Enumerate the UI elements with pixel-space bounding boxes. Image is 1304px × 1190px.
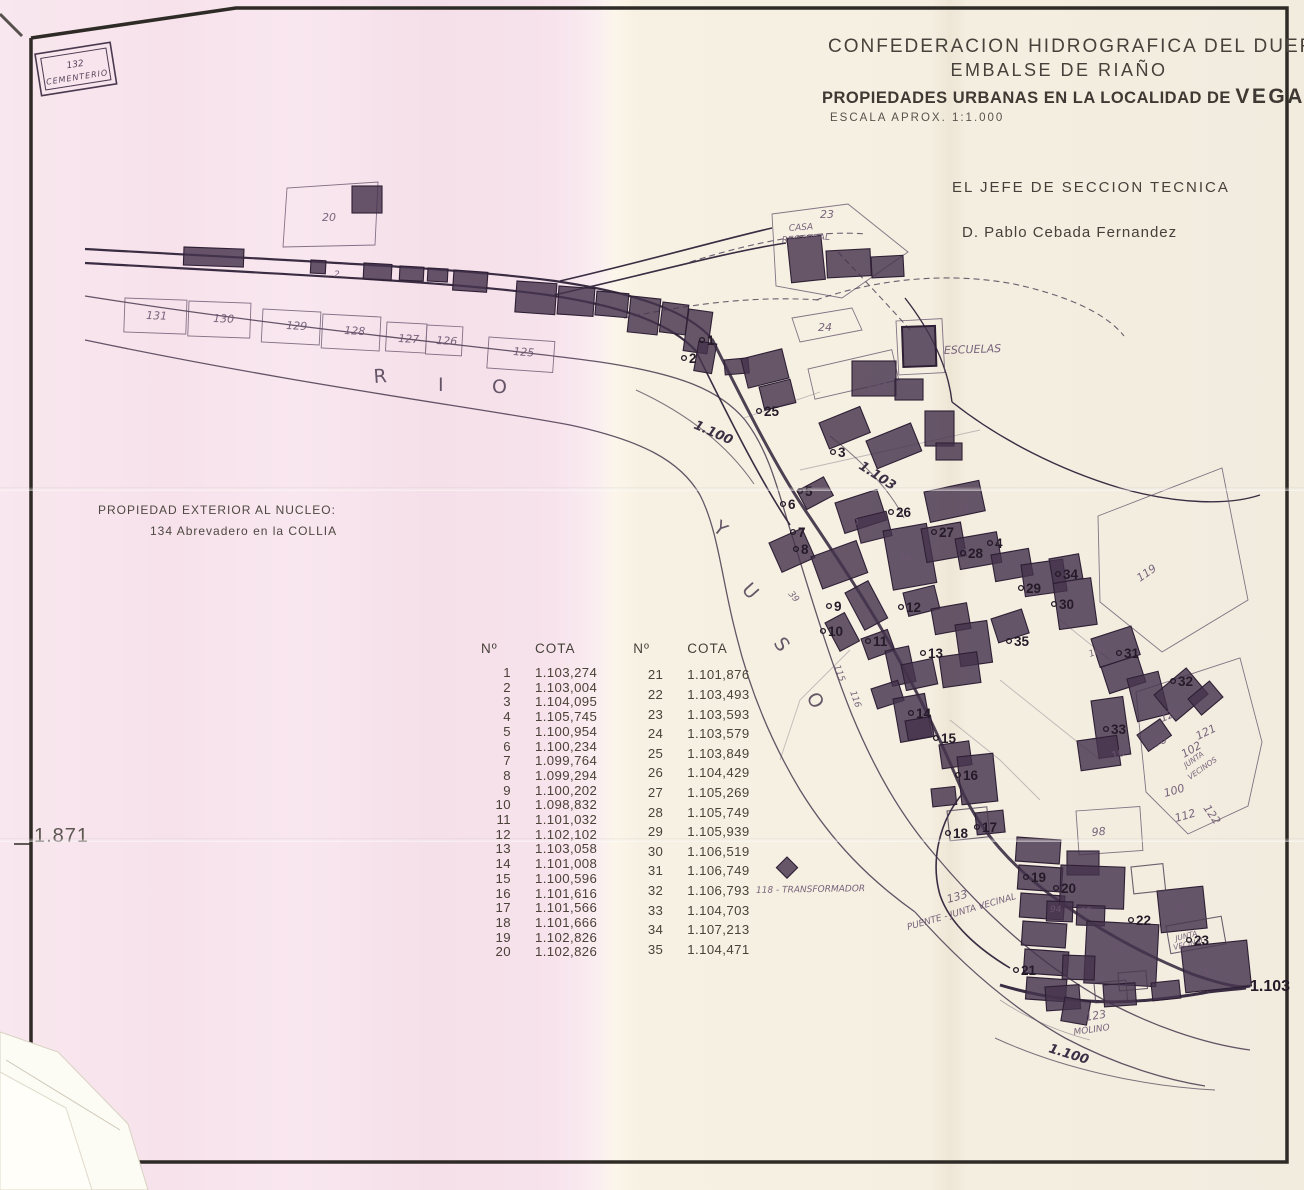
cota-row-value: 1.104,429 xyxy=(687,764,749,784)
survey-point-number: 26 xyxy=(896,505,912,520)
cota-row: 61.100,234 xyxy=(481,740,597,755)
map-label: 95 xyxy=(1080,907,1092,917)
map-label: 1.100 xyxy=(691,418,735,448)
map-label: 115 xyxy=(831,664,846,684)
map-label: 133 xyxy=(945,888,969,906)
org-title: CONFEDERACION HIDROGRAFICA DEL DUERO xyxy=(828,36,1290,58)
survey-point-number: 33 xyxy=(1111,722,1127,737)
map-label: S xyxy=(769,633,794,655)
cota-row-number: 22 xyxy=(633,686,687,706)
map-label: R xyxy=(373,365,388,388)
cota-row-value: 1.101,616 xyxy=(535,887,597,902)
cota-row-value: 1.102,826 xyxy=(535,945,597,960)
cota-row-value: 1.099,294 xyxy=(535,769,597,784)
survey-point-number: 6 xyxy=(788,497,796,512)
cota-row: 51.100,954 xyxy=(481,725,597,740)
cota-row-value: 1.100,954 xyxy=(535,725,597,740)
map-label: 118 - TRANSFORMADOR xyxy=(756,884,865,896)
cota-row: 81.099,294 xyxy=(481,769,597,784)
cota-row-value: 1.101,566 xyxy=(535,901,597,916)
cota-row-value: 1.101,876 xyxy=(687,666,749,686)
cota-row: 151.100,596 xyxy=(481,872,597,887)
survey-point-number: 5 xyxy=(805,484,813,499)
cota-row: 161.101,616 xyxy=(481,887,597,902)
map-label: 125 xyxy=(513,345,535,359)
cota-row-number: 31 xyxy=(633,862,687,882)
cota-row-value: 1.103,579 xyxy=(687,725,749,745)
col-header-num: Nº xyxy=(633,641,687,666)
cota-row-value: 1.105,745 xyxy=(535,710,597,725)
map-label: MOLINO xyxy=(1073,1023,1110,1038)
survey-point-number: 28 xyxy=(968,546,984,561)
survey-point-number: 32 xyxy=(1178,674,1193,689)
map-label: 119 xyxy=(1134,562,1159,585)
cota-row-value: 1.101,666 xyxy=(535,916,597,931)
note-line2: 134 Abrevadero en la COLLIA xyxy=(150,524,337,538)
survey-point-dot xyxy=(1019,586,1024,591)
map-label: 44 xyxy=(899,553,912,565)
cota-row-number: 13 xyxy=(481,842,535,857)
map-label: Y xyxy=(708,516,732,541)
cota-row-number: 21 xyxy=(633,666,687,686)
survey-point-number: 1 xyxy=(707,333,715,348)
cota-row-number: 34 xyxy=(633,921,687,941)
cota-row: 191.102,826 xyxy=(481,931,597,946)
survey-point-dot xyxy=(899,605,904,610)
survey-point-dot xyxy=(1129,918,1134,923)
survey-point-number: 7 xyxy=(798,525,806,540)
signature-role: EL JEFE DE SECCION TECNICA xyxy=(952,179,1230,196)
exterior-property-note: PROPIEDAD EXTERIOR AL NUCLEO: 134 Abreva… xyxy=(98,503,337,538)
col-header-num: Nº xyxy=(481,641,535,666)
cota-row: 261.104,429 xyxy=(633,764,749,784)
map-label: 76 xyxy=(1173,906,1186,917)
project-title: EMBALSE DE RIAÑO xyxy=(828,60,1290,81)
cota-row: 131.103,058 xyxy=(481,842,597,857)
scanned-map-sheet: 132 CEMENTERIO RIOYUSO1.1001.1031.1001.1… xyxy=(0,0,1304,1190)
cota-row-value: 1.099,764 xyxy=(535,754,597,769)
survey-point-dot xyxy=(827,604,832,609)
cota-row-number: 5 xyxy=(481,725,535,740)
map-label: 128 xyxy=(344,324,366,338)
cota-row-number: 27 xyxy=(633,784,687,804)
survey-point-dot xyxy=(921,651,926,656)
map-label: 16 xyxy=(957,504,970,516)
cota-row-value: 1.103,849 xyxy=(687,744,749,764)
survey-point-dot xyxy=(831,450,836,455)
survey-point-number: 10 xyxy=(828,624,843,639)
survey-point-number: 15 xyxy=(941,731,957,746)
cemetery-stamp: 132 CEMENTERIO xyxy=(35,42,117,95)
survey-point-number: 20 xyxy=(1061,881,1076,896)
cota-row-number: 20 xyxy=(481,945,535,960)
cota-row: 171.101,566 xyxy=(481,901,597,916)
map-label: 1.100 xyxy=(1047,1041,1091,1067)
cota-row-number: 4 xyxy=(481,710,535,725)
map-label: 77 xyxy=(1112,945,1124,955)
cota-row-value: 1.105,749 xyxy=(687,803,749,823)
map-label: ESCUELAS xyxy=(944,342,1002,357)
cota-row-value: 1.105,939 xyxy=(687,823,749,843)
cota-row-number: 19 xyxy=(481,931,535,946)
cota-row-value: 1.104,703 xyxy=(687,901,749,921)
cota-row-value: 1.104,095 xyxy=(535,695,597,710)
cota-row: 71.099,764 xyxy=(481,754,597,769)
cota-table: Nº COTA 11.103,27421.103,00431.104,09541… xyxy=(481,641,750,960)
cota-row-number: 3 xyxy=(481,695,535,710)
cota-row-number: 11 xyxy=(481,813,535,828)
map-label: 112 xyxy=(1173,807,1197,825)
survey-point-number: 13 xyxy=(928,646,944,661)
cota-row: 311.106,749 xyxy=(633,862,749,882)
cota-row-number: 24 xyxy=(633,725,687,745)
cota-row-number: 26 xyxy=(633,764,687,784)
cota-row-number: 2 xyxy=(481,681,535,696)
cota-row: 211.101,876 xyxy=(633,666,749,686)
cota-row-number: 16 xyxy=(481,887,535,902)
survey-point-number: 27 xyxy=(939,525,954,540)
cota-row-value: 1.105,269 xyxy=(687,784,749,804)
cota-row-value: 1.106,519 xyxy=(687,842,749,862)
cota-row: 221.103,493 xyxy=(633,686,749,706)
survey-point-number: 18 xyxy=(953,826,969,841)
survey-point-number: 9 xyxy=(834,599,842,614)
map-label: 97 xyxy=(1158,988,1168,998)
survey-point-number: 25 xyxy=(764,404,780,419)
cota-row-number: 23 xyxy=(633,705,687,725)
survey-point-number: 12 xyxy=(906,600,921,615)
survey-point-dot xyxy=(889,510,894,515)
cota-row-value: 1.098,832 xyxy=(535,798,597,813)
cota-row-number: 35 xyxy=(633,940,687,960)
cota-row: 331.104,703 xyxy=(633,901,749,921)
cota-row: 31.104,095 xyxy=(481,695,597,710)
cota-row-number: 6 xyxy=(481,740,535,755)
cota-row: 231.103,593 xyxy=(633,705,749,725)
map-label: 131 xyxy=(146,309,167,323)
cota-row-number: 9 xyxy=(481,784,535,799)
cota-row: 301.106,519 xyxy=(633,842,749,862)
survey-point-dot xyxy=(1014,968,1019,973)
survey-point-number: 14 xyxy=(916,706,932,721)
cota-row-number: 18 xyxy=(481,916,535,931)
survey-point-number: 4 xyxy=(995,536,1003,551)
cota-row-number: 7 xyxy=(481,754,535,769)
cota-row: 291.105,939 xyxy=(633,823,749,843)
cota-row-value: 1.103,274 xyxy=(535,666,597,681)
survey-point-number: 31 xyxy=(1124,646,1140,661)
cota-row: 271.105,269 xyxy=(633,784,749,804)
map-label: 24 xyxy=(818,321,832,334)
cota-row: 241.103,579 xyxy=(633,725,749,745)
cota-row-number: 17 xyxy=(481,901,535,916)
cota-row-number: 15 xyxy=(481,872,535,887)
survey-point-number: 34 xyxy=(1063,567,1079,582)
cota-row-number: 10 xyxy=(481,798,535,813)
svg-text:132: 132 xyxy=(66,59,85,72)
cota-table-right: Nº COTA 211.101,876221.103,493231.103,59… xyxy=(633,641,749,960)
map-label: 116 xyxy=(847,690,862,710)
map-label: 94 xyxy=(1050,905,1062,915)
map-label: RECTORAL xyxy=(782,233,831,246)
folded-corner xyxy=(0,1032,148,1190)
cota-row-number: 33 xyxy=(633,901,687,921)
cota-row: 11.103,274 xyxy=(481,666,597,681)
cota-row-value: 1.106,749 xyxy=(687,862,749,882)
cota-row: 101.098,832 xyxy=(481,798,597,813)
map-label: O xyxy=(492,376,507,398)
cota-row-value: 1.106,793 xyxy=(687,882,749,902)
cota-row-value: 1.107,213 xyxy=(687,921,749,941)
cota-row: 181.101,666 xyxy=(481,916,597,931)
cota-row-number: 29 xyxy=(633,823,687,843)
cota-row: 41.105,745 xyxy=(481,710,597,725)
cota-row: 281.105,749 xyxy=(633,803,749,823)
survey-point-number: 2 xyxy=(689,351,697,366)
map-label: CASA xyxy=(789,222,814,234)
cota-row-value: 1.102,826 xyxy=(535,931,597,946)
cota-row-number: 12 xyxy=(481,828,535,843)
cota-row: 251.103,849 xyxy=(633,744,749,764)
survey-point-dot xyxy=(682,356,687,361)
cota-row-value: 1.100,202 xyxy=(535,784,597,799)
map-label: 126 xyxy=(436,334,458,348)
map-label: 92 xyxy=(1203,966,1216,977)
col-header-cota: COTA xyxy=(687,641,749,666)
cota-row-number: 30 xyxy=(633,842,687,862)
cota-row: 91.100,202 xyxy=(481,784,597,799)
survey-point-number: 22 xyxy=(1136,913,1151,928)
survey-point-number: 35 xyxy=(1014,634,1030,649)
survey-point-number: 23 xyxy=(1194,933,1210,948)
map-title-place: VEGACERNEJA xyxy=(1235,85,1304,108)
cota-row-value: 1.103,004 xyxy=(535,681,597,696)
cota-row-value: 1.101,008 xyxy=(535,857,597,872)
svg-text:CEMENTERIO: CEMENTERIO xyxy=(45,68,108,87)
survey-point-number: 17 xyxy=(982,820,997,835)
cota-row-value: 1.104,471 xyxy=(687,940,749,960)
cota-row-number: 32 xyxy=(633,882,687,902)
map-label: 129 xyxy=(286,319,308,333)
map-label: 98 xyxy=(1091,825,1106,839)
cota-row-value: 1.101,032 xyxy=(535,813,597,828)
survey-point-number: 3 xyxy=(838,445,846,460)
cota-row-number: 1 xyxy=(481,666,535,681)
cota-row: 121.102,102 xyxy=(481,828,597,843)
cota-row-value: 1.103,593 xyxy=(687,705,749,725)
map-label: 23 xyxy=(820,208,834,221)
cota-row: 321.106,793 xyxy=(633,882,749,902)
map-title-prefix: PROPIEDADES URBANAS EN LA LOCALIDAD DE xyxy=(822,89,1231,107)
cota-row: 351.104,471 xyxy=(633,940,749,960)
cota-row: 201.102,826 xyxy=(481,945,597,960)
survey-point-number: 30 xyxy=(1059,597,1074,612)
cota-row-value: 1.103,493 xyxy=(687,686,749,706)
map-label: 39 xyxy=(786,590,801,605)
map-label: 127 xyxy=(398,332,420,346)
cota-row-number: 28 xyxy=(633,803,687,823)
survey-point-number: 8 xyxy=(801,542,809,557)
signature-name: D. Pablo Cebada Fernandez xyxy=(962,224,1177,241)
cota-row-value: 1.103,058 xyxy=(535,842,597,857)
cota-row: 341.107,213 xyxy=(633,921,749,941)
cota-row: 141.101,008 xyxy=(481,857,597,872)
cota-row-value: 1.100,596 xyxy=(535,872,597,887)
map-label: 130 xyxy=(213,312,234,326)
map-label: U xyxy=(737,579,763,604)
cota-table-left: Nº COTA 11.103,27421.103,00431.104,09541… xyxy=(481,641,597,960)
survey-point-number: 11 xyxy=(873,634,888,649)
map-label: 1.103 xyxy=(1250,978,1290,995)
survey-point-number: 21 xyxy=(1021,963,1037,978)
cota-row-number: 25 xyxy=(633,744,687,764)
survey-point-number: 29 xyxy=(1026,581,1041,596)
map-title: PROPIEDADES URBANAS EN LA LOCALIDAD DE V… xyxy=(822,85,1292,109)
scale-note: ESCALA APROX. 1:1.000 xyxy=(830,112,1004,124)
survey-point-number: 19 xyxy=(1031,870,1046,885)
map-label: 2 xyxy=(334,270,340,280)
cota-row-value: 1.102,102 xyxy=(535,828,597,843)
map-label: I xyxy=(438,374,444,396)
cota-row-value: 1.100,234 xyxy=(535,740,597,755)
col-header-cota: COTA xyxy=(535,641,597,666)
map-label: 123 xyxy=(1084,1008,1107,1024)
sheet-number: 1.871 xyxy=(34,825,89,848)
note-line1: PROPIEDAD EXTERIOR AL NUCLEO: xyxy=(98,503,337,517)
survey-point-number: 16 xyxy=(963,768,979,783)
cota-row-number: 8 xyxy=(481,769,535,784)
cota-row-number: 14 xyxy=(481,857,535,872)
map-label: 100 xyxy=(1162,782,1186,800)
cota-row: 111.101,032 xyxy=(481,813,597,828)
cota-row: 21.103,004 xyxy=(481,681,597,696)
map-label: O xyxy=(802,689,829,713)
map-label: 122 xyxy=(1201,802,1224,827)
map-label: 20 xyxy=(322,211,336,224)
